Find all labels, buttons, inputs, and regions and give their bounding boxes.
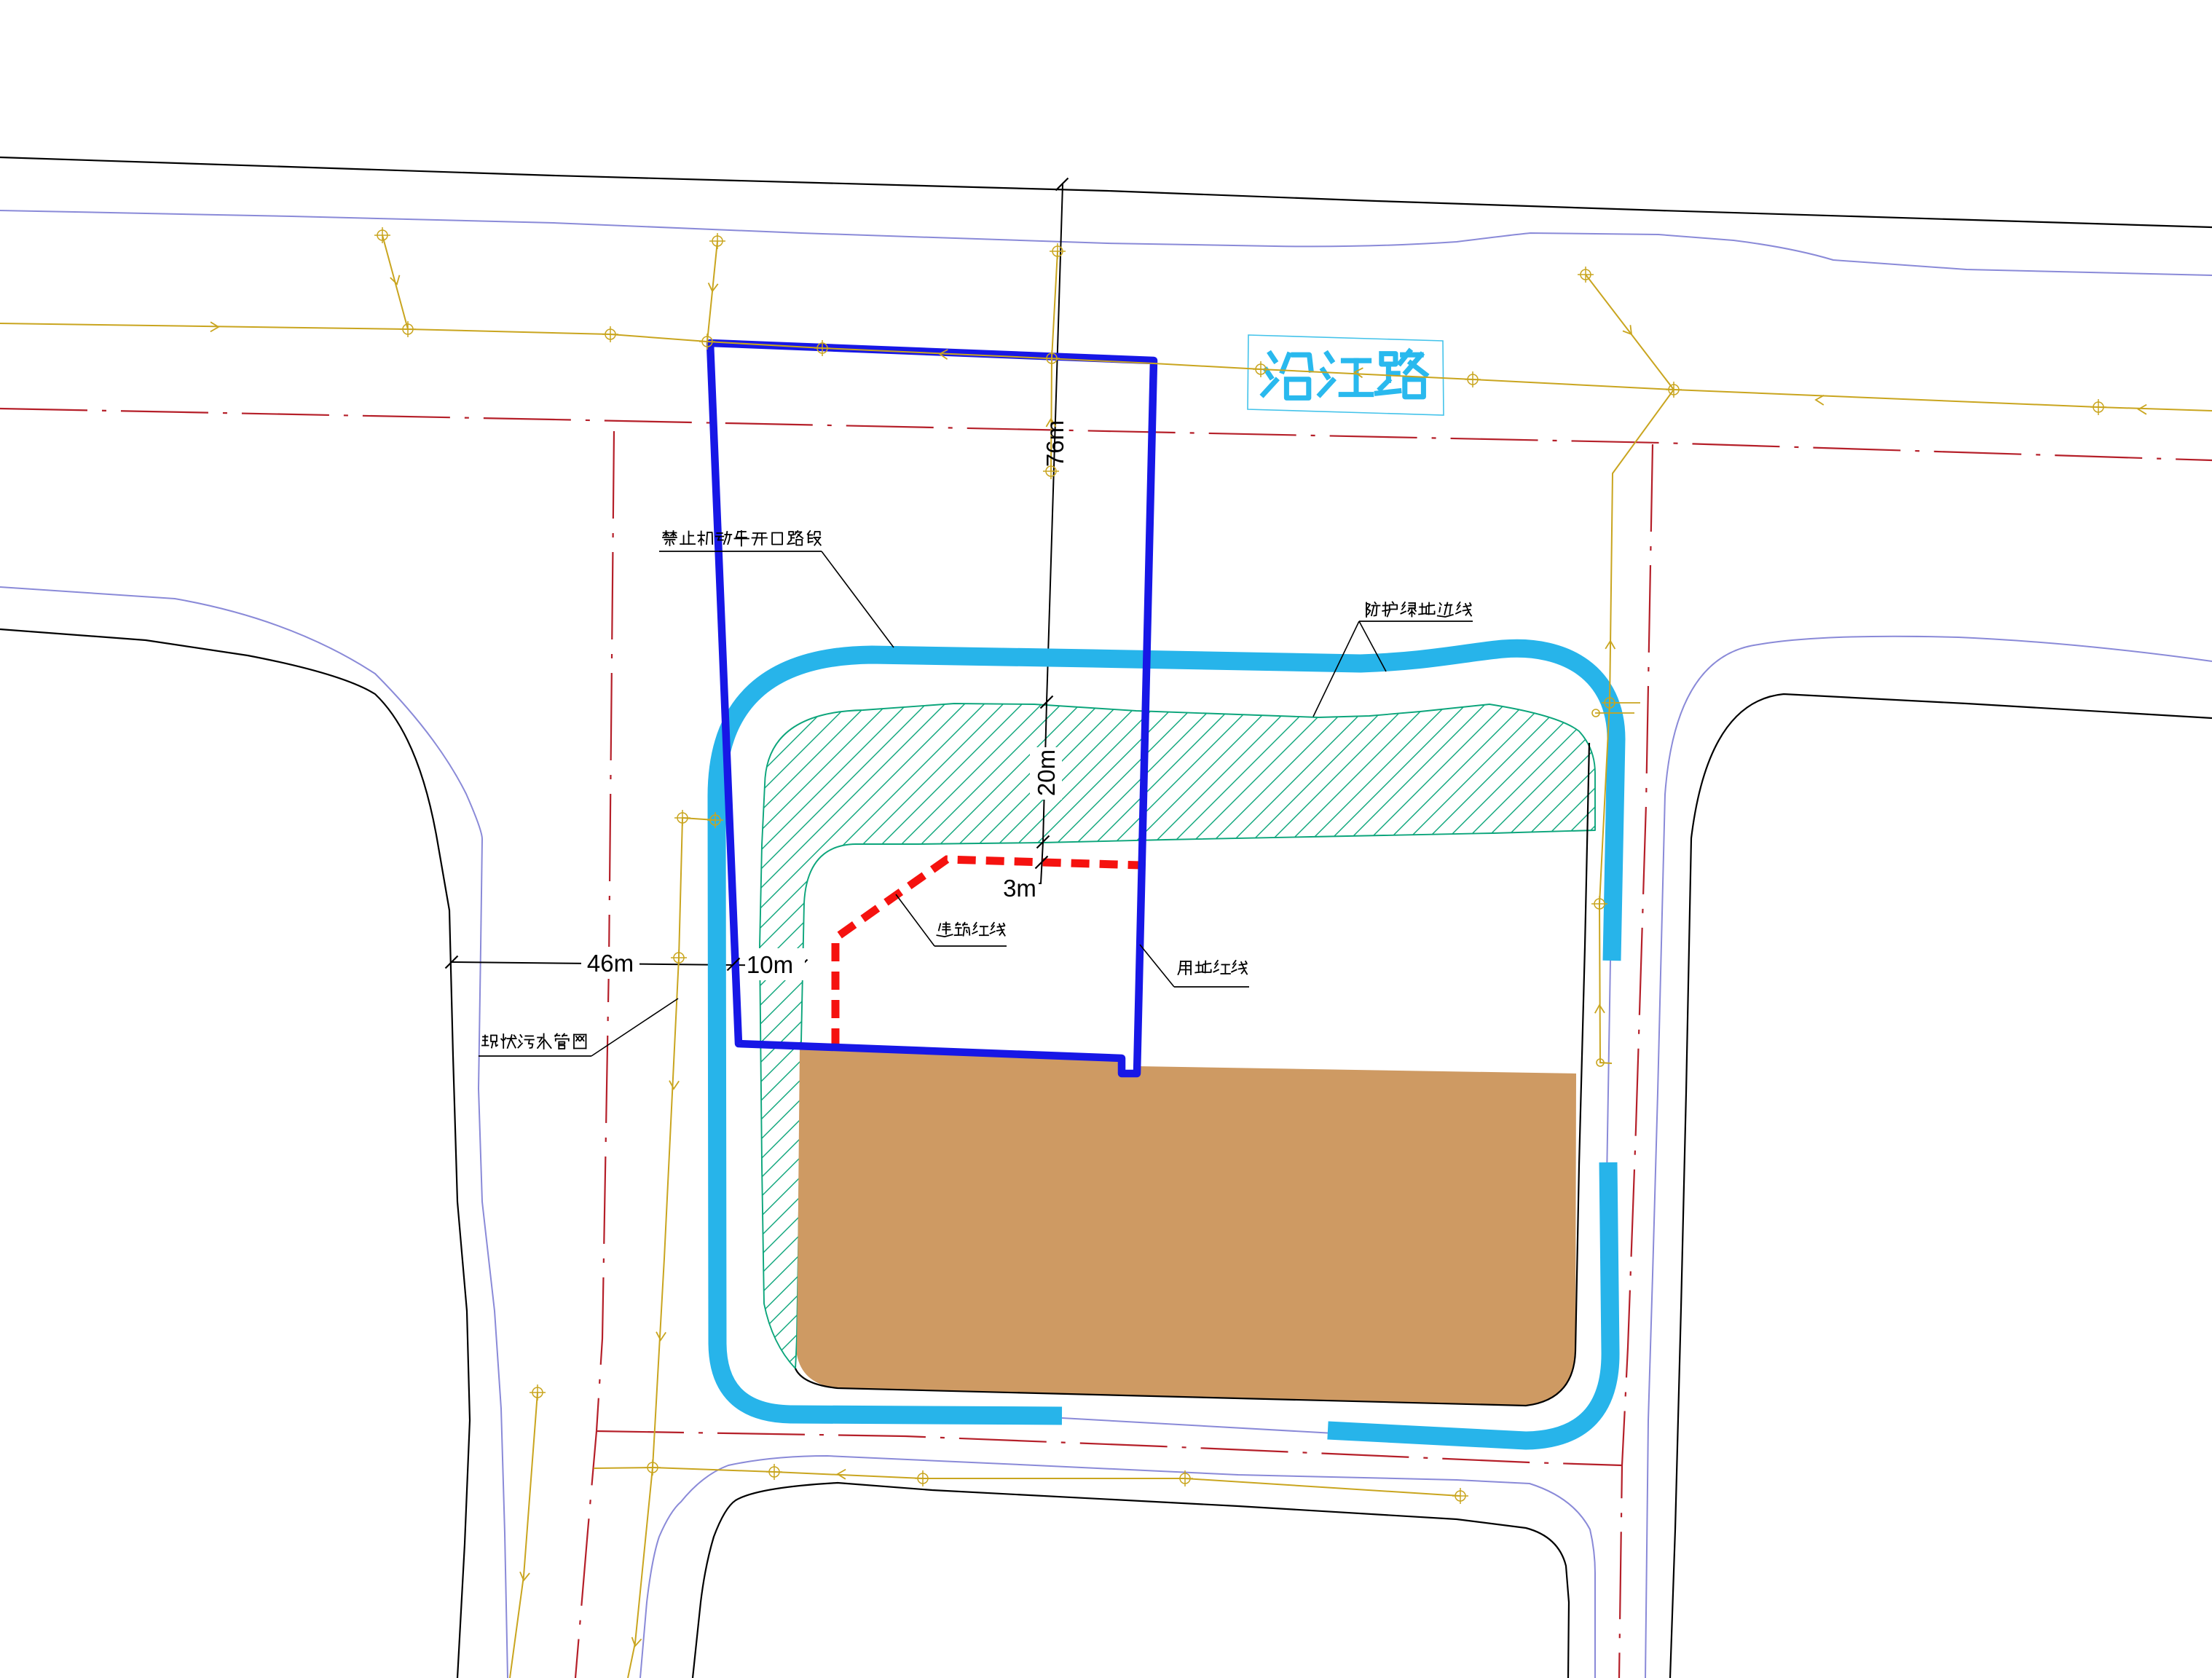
svg-text:76m: 76m [1042, 420, 1068, 467]
svg-text:10m: 10m [747, 951, 793, 978]
svg-text:46m: 46m [587, 950, 634, 977]
svg-text:3m: 3m [1003, 875, 1036, 902]
svg-text:20m: 20m [1033, 749, 1060, 796]
